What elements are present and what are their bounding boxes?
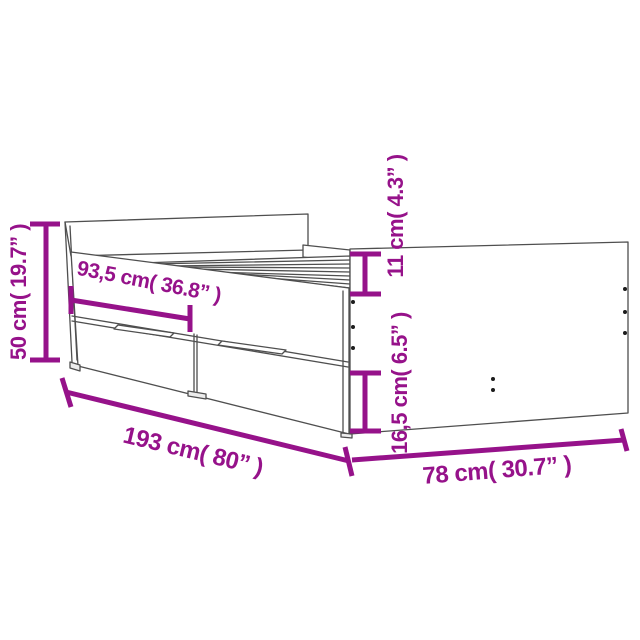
drawer-height-dimension-label: 16,5 cm( 6.5” ) bbox=[389, 312, 411, 454]
rail-height-dimension-label: 11 cm( 4.3” ) bbox=[385, 154, 407, 277]
dim-height bbox=[30, 224, 60, 360]
bed-frame-line-drawing bbox=[0, 0, 640, 640]
height-dimension-label: 50 cm( 19.7” ) bbox=[8, 224, 30, 360]
dimension-diagram: 50 cm( 19.7” ) 93,5 cm( 36.8” ) 11 cm( 4… bbox=[0, 0, 640, 640]
headboard-panel bbox=[65, 214, 308, 256]
bed-frame-outline bbox=[65, 214, 628, 438]
